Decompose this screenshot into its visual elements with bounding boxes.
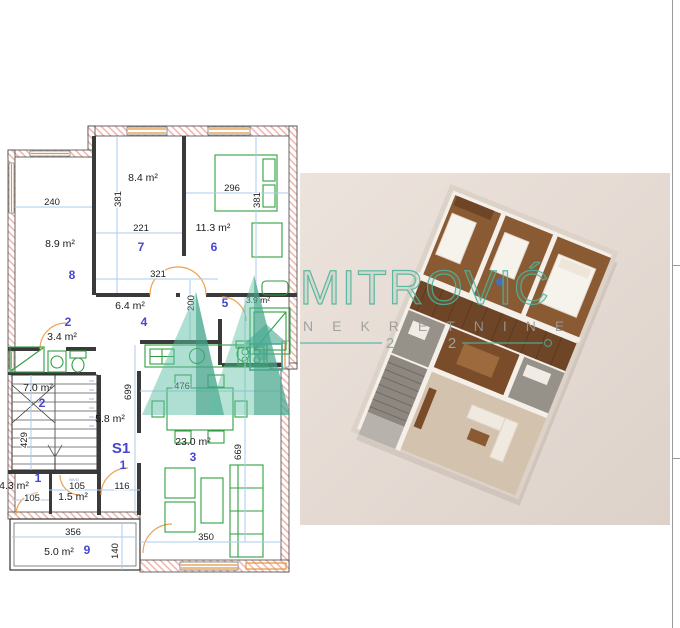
unit-number: 1 [120,458,127,472]
dim-381-left: 381 [113,191,124,207]
dim-356: 356 [65,527,81,538]
room-4-number: 4 [141,315,148,329]
dim-381-right: 381 [252,192,263,208]
dim-296: 296 [224,183,240,194]
room-2a-area: 3.4 m² [47,331,77,343]
room-2b-number: 2 [39,396,46,410]
page-edge-line [672,0,673,628]
unit-code: S1 [112,440,130,457]
dim-105-a: 105 [24,493,40,504]
dim-699: 699 [123,384,134,400]
room-7-number: 7 [138,240,145,254]
dim-240: 240 [44,197,60,208]
room-4-area: 6.4 m² [115,300,145,312]
room-2a-number: 2 [65,315,72,329]
render-3d-svg [300,173,670,525]
room-1-number: 1 [35,471,42,485]
room-9-number: 9 [84,543,91,557]
room-5-area: 3.9 m² [246,295,270,305]
page-edge-tick-bottom [672,458,680,459]
room-3-area: 23.0 m² [175,436,211,448]
dim-105-b: 105 [69,481,85,492]
room-1-area: 4.3 m² [0,480,29,492]
floor-plan: 8.4 m² 7 11.3 m² 6 8.9 m² 8 2 3.4 m² 6.4… [0,123,300,573]
room-8-area: 8.9 m² [45,238,75,250]
render-3d-image [300,173,670,525]
room-9-area: 5.0 m² [44,546,74,558]
room-5-number: 5 [222,296,229,310]
page: { "plan": { "rooms": { "r7": {"num": "7"… [0,0,680,628]
dim-116: 116 [114,481,129,492]
dim-476: 476 [174,381,190,392]
dim-429: 429 [19,432,30,448]
room-8-number: 8 [69,268,76,282]
closet-area: 1.5 m² [58,491,88,503]
room-7-area: 8.4 m² [128,172,158,184]
page-edge-tick-top [672,265,680,266]
room-3-number: 3 [190,450,197,464]
room-2b-area: 7.0 m² [23,382,53,394]
dim-321: 321 [150,269,166,280]
dim-669: 669 [233,444,244,460]
dim-350: 350 [198,532,214,543]
dim-140: 140 [110,543,121,559]
dim-221: 221 [133,223,149,234]
corridor-area: 5.8 m² [95,413,125,425]
dim-200: 200 [186,295,197,311]
room-6-number: 6 [211,240,218,254]
room-6-area: 11.3 m² [196,222,231,234]
